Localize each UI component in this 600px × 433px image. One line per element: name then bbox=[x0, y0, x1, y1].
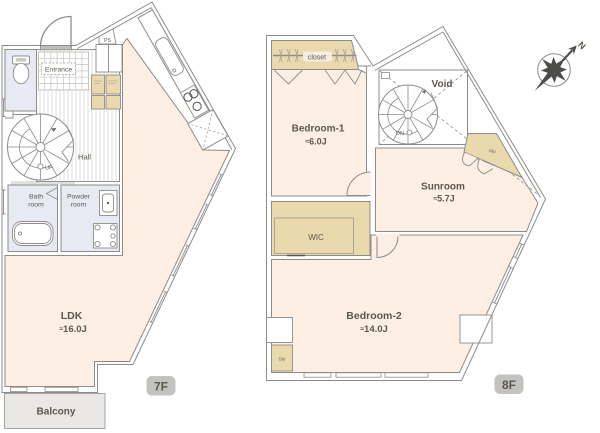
svg-text:Void: Void bbox=[432, 79, 453, 90]
svg-text:DN: DN bbox=[396, 131, 404, 137]
svg-text:Bedroom-2: Bedroom-2 bbox=[346, 310, 402, 322]
svg-text:closet: closet bbox=[308, 55, 326, 62]
svg-text:Entrance: Entrance bbox=[45, 67, 72, 74]
svg-text:8F: 8F bbox=[502, 378, 516, 392]
svg-text:Powder: Powder bbox=[67, 194, 91, 201]
svg-text:room: room bbox=[28, 202, 44, 209]
svg-text:LDK: LDK bbox=[61, 310, 83, 322]
svg-text:PS: PS bbox=[104, 38, 111, 44]
svg-text:Sto: Sto bbox=[279, 357, 286, 362]
svg-text:≈16.0J: ≈16.0J bbox=[59, 324, 87, 335]
svg-text:Bath: Bath bbox=[29, 194, 43, 201]
svg-text:Sunroom: Sunroom bbox=[421, 182, 465, 193]
svg-text:Balcony: Balcony bbox=[37, 407, 76, 418]
svg-text:Bedroom-1: Bedroom-1 bbox=[292, 124, 345, 135]
svg-text:UP: UP bbox=[45, 166, 53, 172]
svg-text:room: room bbox=[71, 202, 87, 209]
svg-text:7F: 7F bbox=[154, 380, 168, 394]
svg-text:Hall: Hall bbox=[78, 153, 91, 162]
svg-text:≈14.0J: ≈14.0J bbox=[360, 324, 388, 335]
svg-text:WIC: WIC bbox=[308, 233, 324, 242]
svg-text:≈5.7J: ≈5.7J bbox=[433, 194, 454, 204]
svg-text:≈6.0J: ≈6.0J bbox=[305, 137, 326, 147]
